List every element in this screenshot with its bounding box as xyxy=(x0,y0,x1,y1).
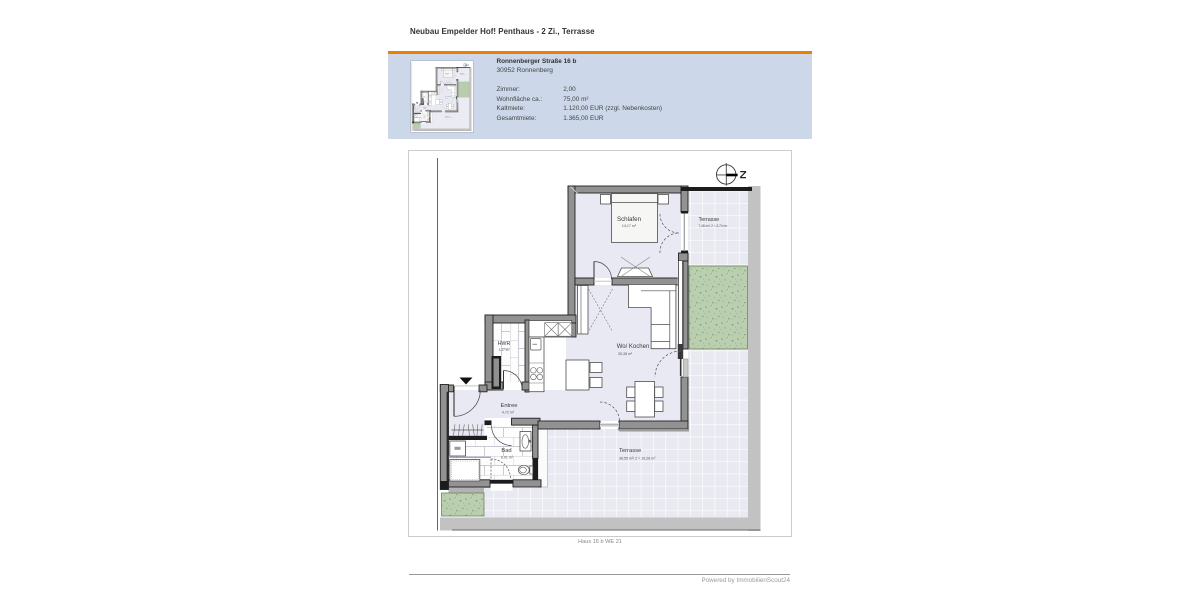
svg-text:Wo/ Kochen: Wo/ Kochen xyxy=(617,344,650,350)
svg-text:Entree: Entree xyxy=(500,403,517,409)
svg-text:3,17 m²: 3,17 m² xyxy=(499,348,510,352)
svg-text:Bad: Bad xyxy=(501,448,511,454)
svg-text:7,48 m²/ 2 = 3,74 m²: 7,48 m²/ 2 = 3,74 m² xyxy=(699,224,728,228)
svg-text:Terrasse: Terrasse xyxy=(619,448,641,454)
svg-text:30,38 m²: 30,38 m² xyxy=(618,352,633,356)
svg-text:38,55 m²/ 2 = 19,28 m²: 38,55 m²/ 2 = 19,28 m² xyxy=(619,457,656,461)
svg-text:4,72 m²: 4,72 m² xyxy=(502,411,515,415)
svg-text:Schlafen: Schlafen xyxy=(617,216,642,223)
svg-text:6,91 m²: 6,91 m² xyxy=(501,456,514,460)
svg-text:Terrasse: Terrasse xyxy=(699,217,720,223)
svg-text:HWR: HWR xyxy=(498,341,511,347)
svg-text:14,17 m²: 14,17 m² xyxy=(622,224,637,228)
